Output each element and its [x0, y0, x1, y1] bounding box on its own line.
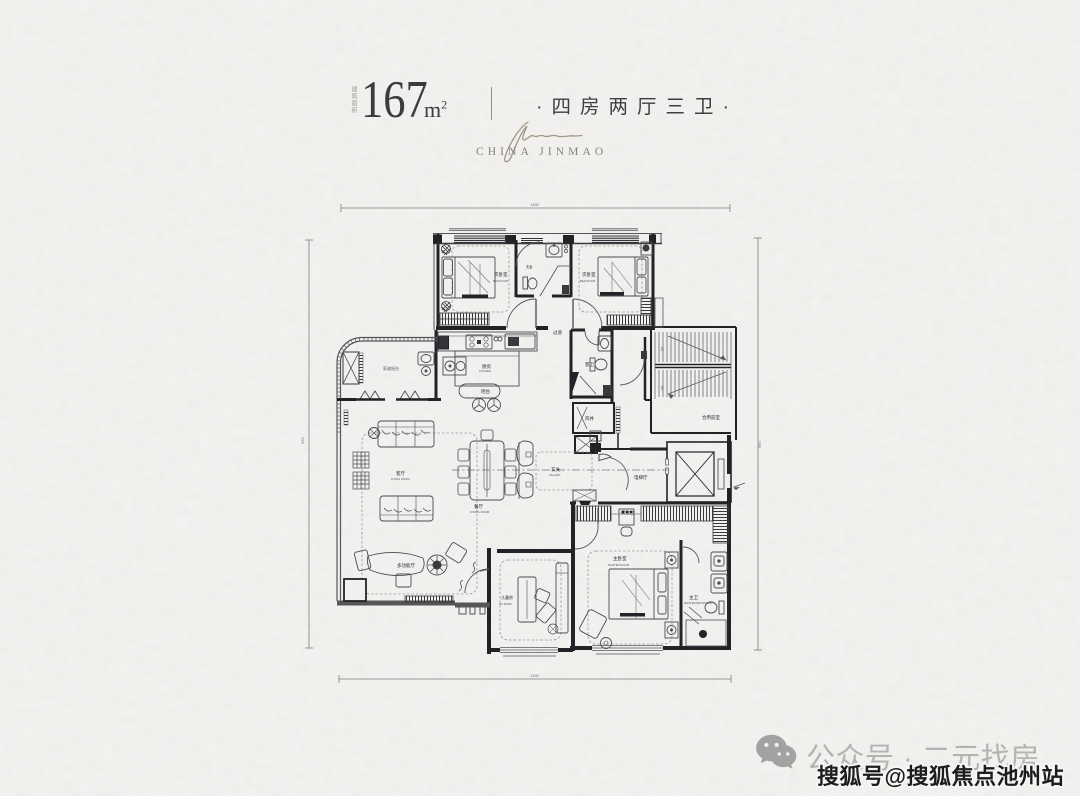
svg-text:过道: 过道 — [553, 329, 562, 336]
svg-text:上: 上 — [660, 345, 664, 351]
svg-text:家政阳台: 家政阳台 — [383, 365, 399, 371]
svg-text:HALLWAY: HALLWAY — [549, 474, 561, 477]
svg-text:合用前室: 合用前室 — [702, 414, 720, 421]
svg-text:1480: 1480 — [530, 673, 540, 678]
svg-text:客卫: 客卫 — [585, 361, 594, 368]
svg-text:MASTER BATHROOM: MASTER BATHROOM — [684, 601, 713, 605]
svg-text:次卧室: 次卧室 — [494, 271, 508, 278]
svg-text:下: 下 — [660, 386, 664, 391]
svg-text:BED ROOM: BED ROOM — [580, 279, 596, 283]
svg-text:电梯厅: 电梯厅 — [634, 474, 648, 481]
svg-text:餐厅: 餐厅 — [474, 503, 483, 510]
svg-text:LIVING ROOM: LIVING ROOM — [391, 477, 410, 481]
svg-text:儿童房: 儿童房 — [501, 594, 513, 600]
svg-text:客厅: 客厅 — [396, 470, 405, 477]
svg-text:960: 960 — [757, 441, 762, 448]
svg-text:玄关: 玄关 — [551, 466, 560, 473]
svg-text:多功能厅: 多功能厅 — [397, 562, 415, 569]
svg-text:主卫: 主卫 — [689, 594, 698, 600]
svg-text:KID ROOM: KID ROOM — [499, 603, 512, 606]
svg-text:主卧室: 主卧室 — [613, 555, 627, 562]
svg-text:DINING ROOM: DINING ROOM — [470, 510, 490, 514]
svg-text:1480: 1480 — [530, 202, 540, 207]
svg-text:梳妆台: 梳妆台 — [621, 509, 635, 516]
svg-text:960: 960 — [300, 437, 305, 444]
svg-text:MASTER ROOM: MASTER ROOM — [608, 563, 630, 567]
svg-text:BED ROOM: BED ROOM — [493, 279, 509, 283]
svg-text:风井: 风井 — [585, 415, 594, 422]
svg-text:夫妻: 夫妻 — [526, 264, 533, 269]
svg-text:次卧室: 次卧室 — [582, 271, 596, 278]
svg-text:吧台: 吧台 — [481, 388, 490, 395]
svg-text:KITCHEN: KITCHEN — [479, 369, 491, 373]
